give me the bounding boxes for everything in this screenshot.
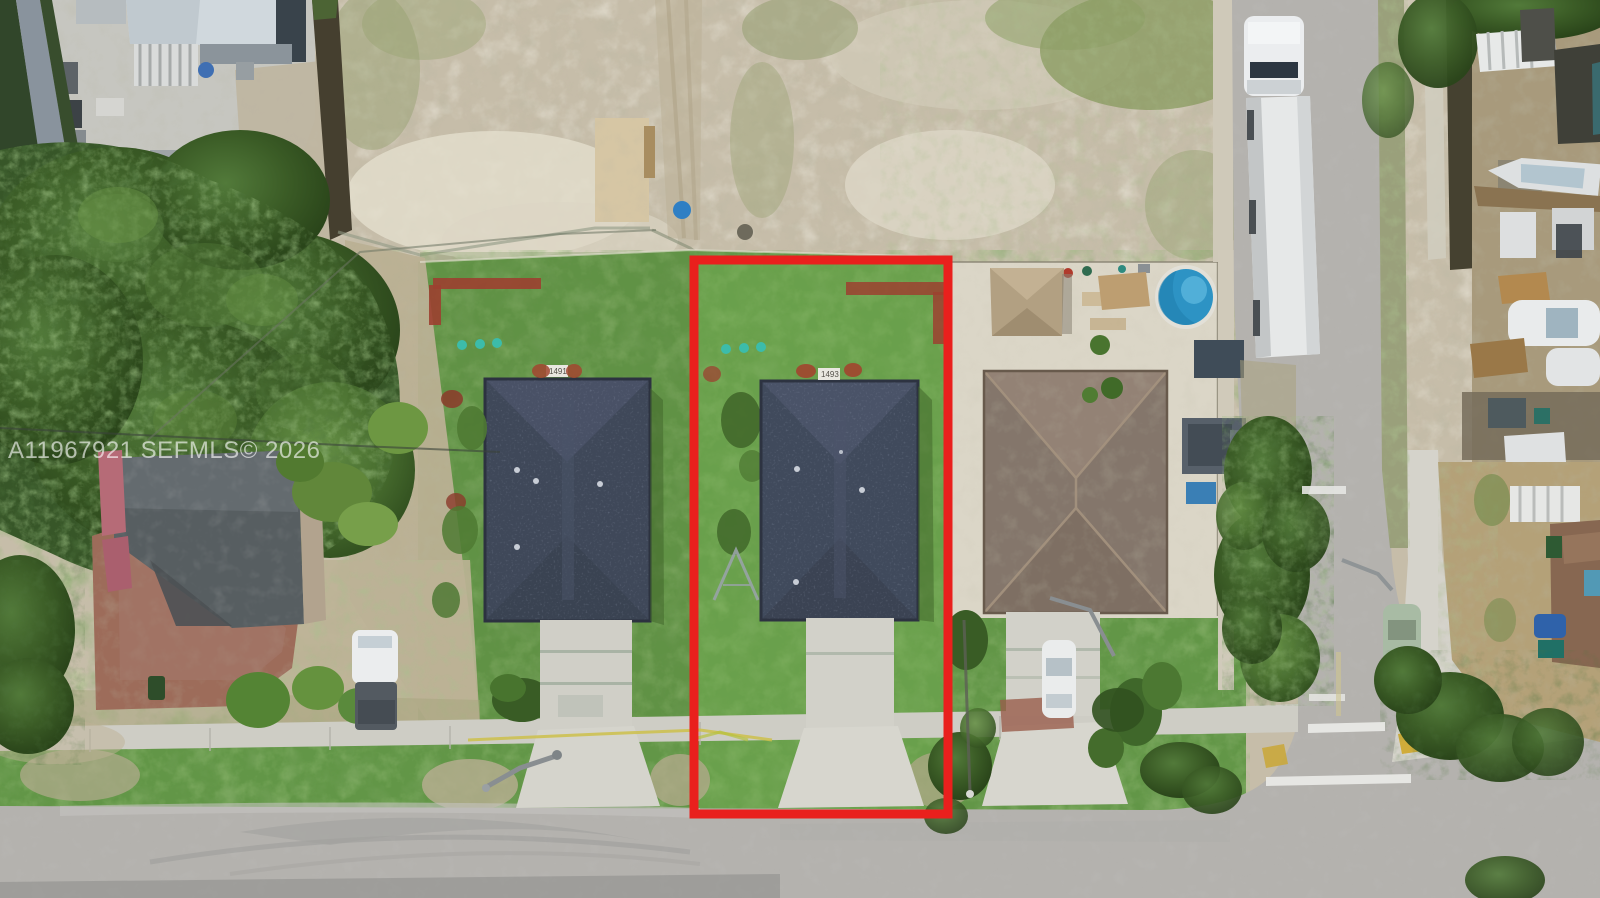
svg-text:A11967921 SEFMLS© 2026: A11967921 SEFMLS© 2026 (8, 437, 320, 464)
svg-text:1493: 1493 (821, 370, 839, 379)
svg-text:1491: 1491 (549, 367, 567, 376)
